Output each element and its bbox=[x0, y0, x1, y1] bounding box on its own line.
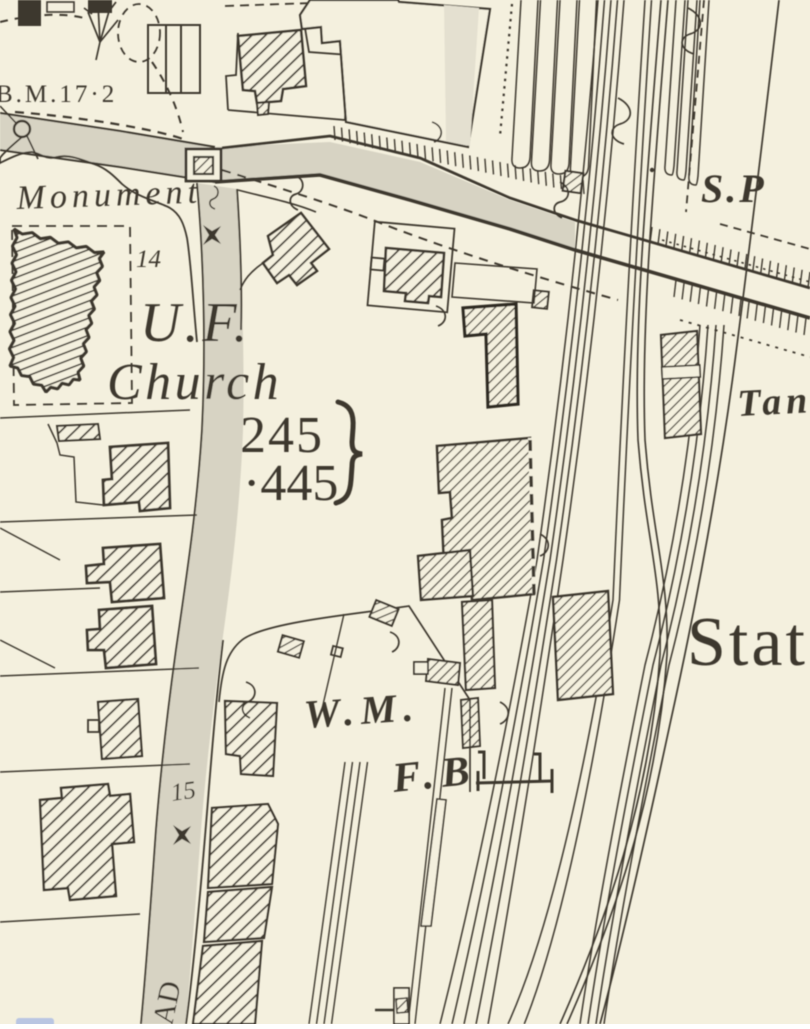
svg-text:Monument: Monument bbox=[15, 174, 203, 217]
svg-text:U.F.: U.F. bbox=[140, 292, 251, 354]
svg-text:W.M.: W.M. bbox=[302, 684, 421, 737]
svg-text:15: 15 bbox=[169, 777, 198, 807]
svg-text:14: 14 bbox=[136, 246, 161, 273]
svg-text:Tan: Tan bbox=[736, 379, 810, 425]
svg-text:Stat: Stat bbox=[687, 604, 808, 681]
svg-text:F.B: F.B bbox=[389, 747, 479, 802]
svg-text:B.M.17·2: B.M.17·2 bbox=[0, 81, 117, 108]
svg-text:S.P: S.P bbox=[701, 166, 767, 211]
svg-text:Church: Church bbox=[107, 354, 282, 411]
svg-text:·445: ·445 bbox=[243, 455, 338, 512]
